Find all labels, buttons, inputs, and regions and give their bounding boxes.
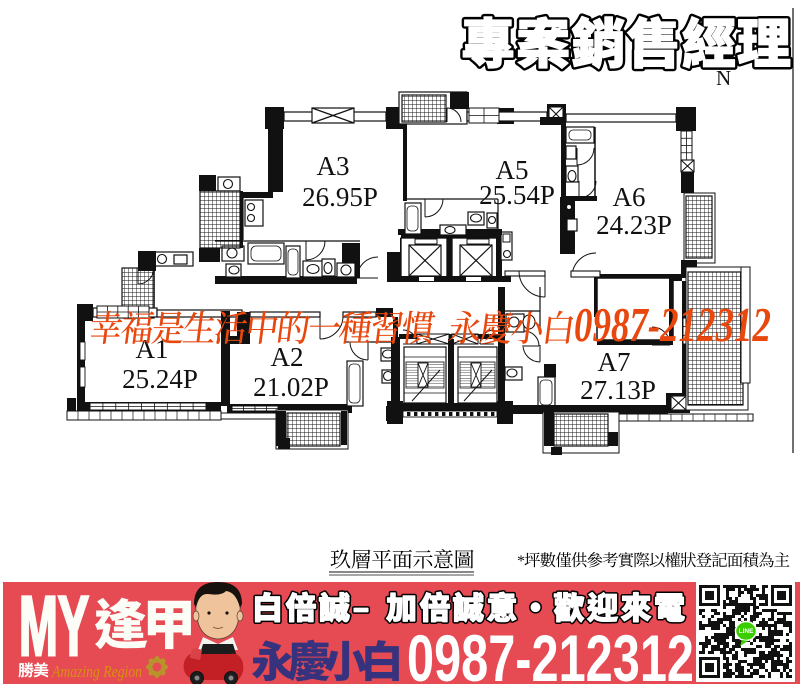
svg-text:Amazing Region: Amazing Region — [51, 662, 142, 681]
svg-text:27.13P: 27.13P — [580, 375, 656, 405]
svg-text:26.95P: 26.95P — [302, 182, 378, 212]
svg-text:LINE: LINE — [739, 628, 754, 635]
svg-text:A3: A3 — [317, 151, 350, 181]
svg-text:24.23P: 24.23P — [596, 210, 672, 240]
svg-text:*: * — [517, 553, 525, 570]
svg-text:0987-212312: 0987-212312 — [574, 297, 771, 352]
svg-text:21.02P: 21.02P — [253, 372, 329, 402]
svg-text:25.54P: 25.54P — [479, 180, 555, 210]
svg-text:A6: A6 — [613, 182, 646, 212]
svg-text:25.24P: 25.24P — [122, 364, 198, 394]
svg-text:MY: MY — [19, 579, 89, 673]
svg-text:A2: A2 — [271, 342, 304, 372]
svg-text:0987-212312: 0987-212312 — [407, 621, 694, 684]
